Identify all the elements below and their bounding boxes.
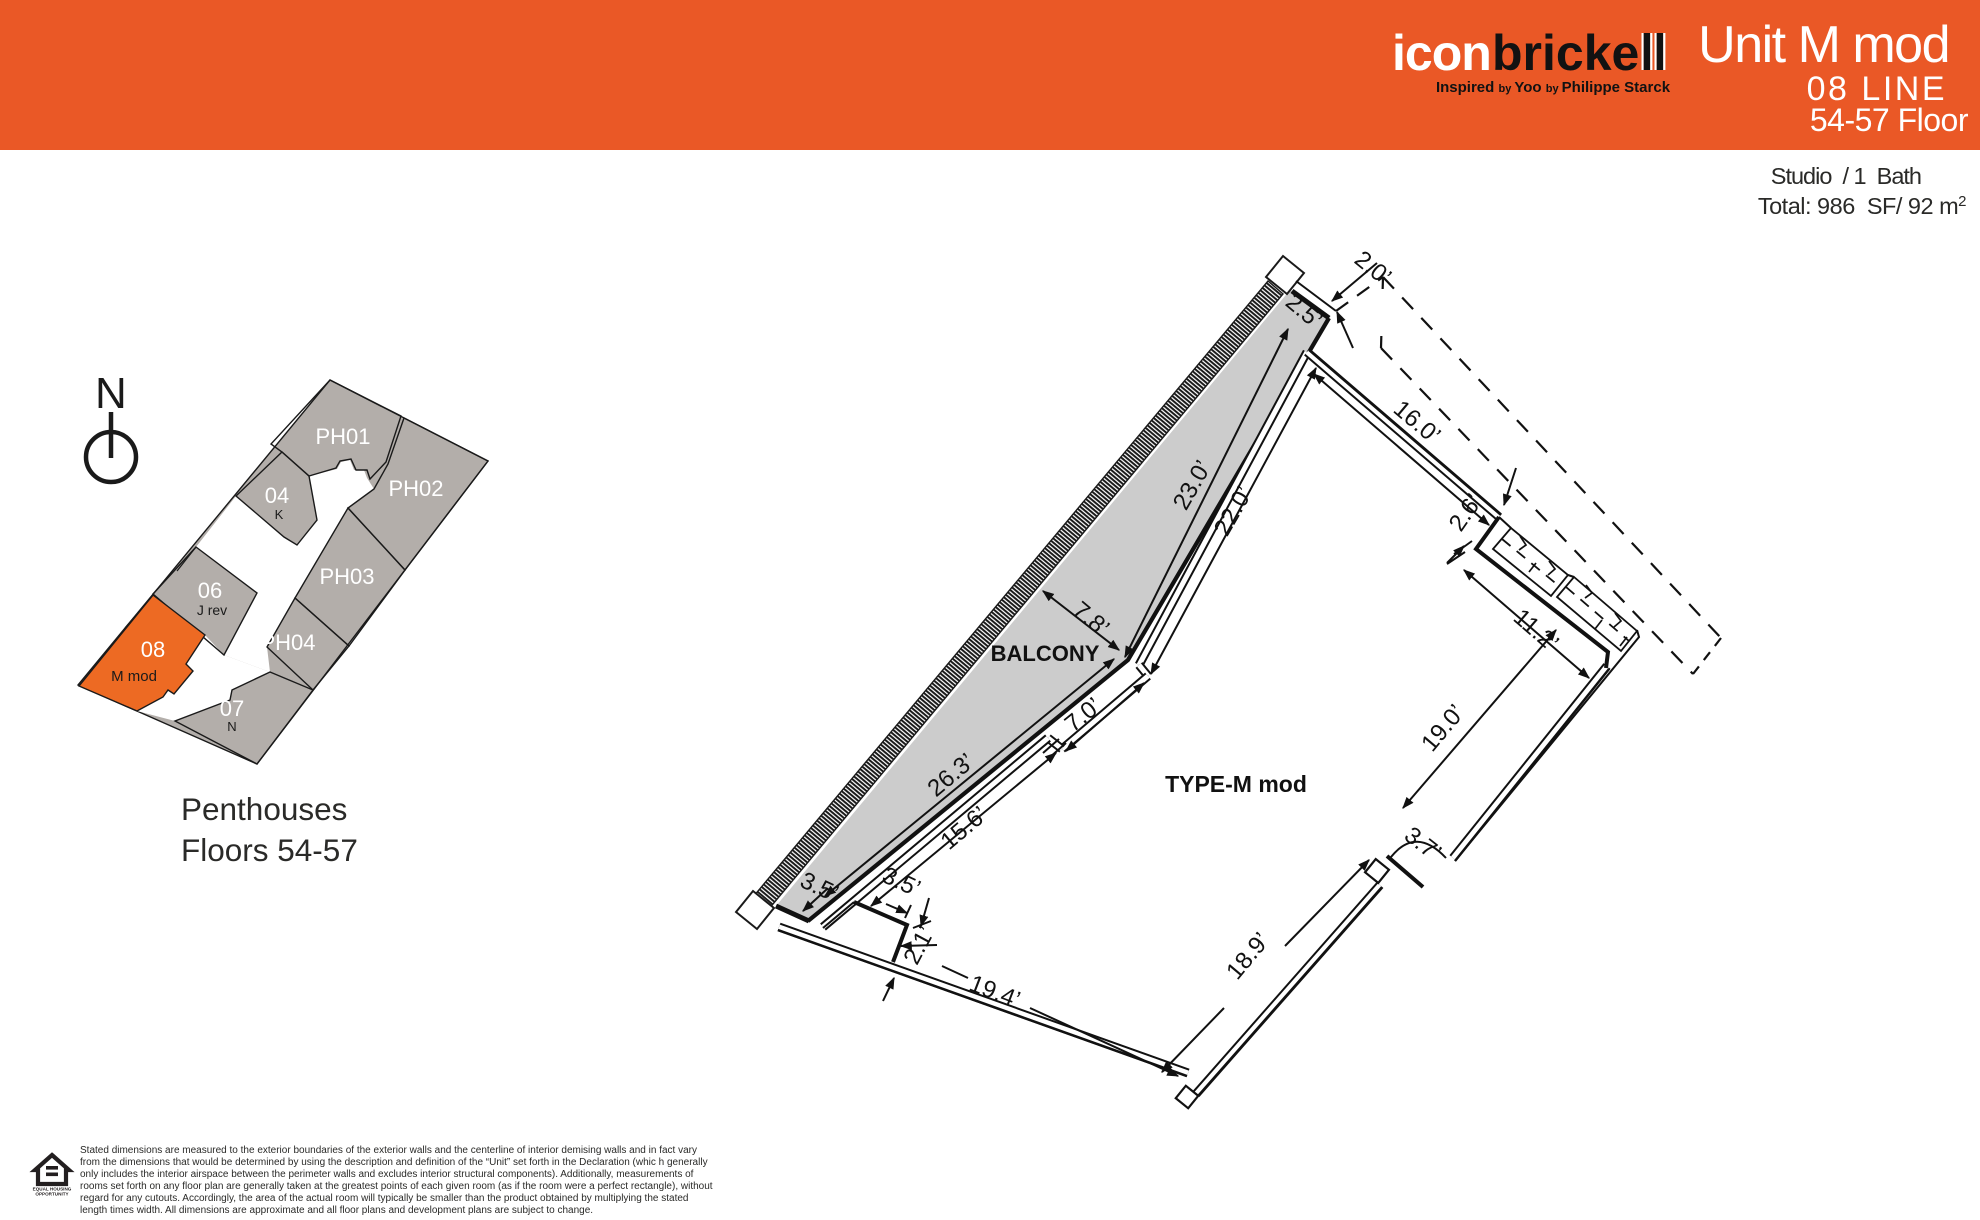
svg-text:M mod: M mod [111, 668, 157, 685]
svg-text:J rev: J rev [197, 602, 227, 618]
svg-text:PH01: PH01 [315, 424, 370, 449]
svg-text:06: 06 [198, 578, 222, 603]
svg-text:regard for any cutouts. Accord: regard for any cutouts. Accordingly, the… [80, 1193, 688, 1204]
svg-text:Total: 986 SF/ 92 m2: Total: 986 SF/ 92 m2 [1758, 193, 1966, 219]
svg-text:BALCONY: BALCONY [991, 641, 1100, 666]
svg-text:08: 08 [141, 637, 165, 662]
svg-text:Stated dimensions are measured: Stated dimensions are measured to the ex… [80, 1145, 697, 1156]
svg-text:bricke: bricke [1492, 25, 1639, 81]
svg-text:OPPORTUNITY: OPPORTUNITY [35, 1192, 68, 1197]
svg-text:length times width. All dimens: length times width. All dimensions are a… [80, 1205, 593, 1215]
svg-text:TYPE-M mod: TYPE-M mod [1165, 771, 1307, 797]
svg-text:Studio / 1 Bath: Studio / 1 Bath [1771, 163, 1921, 189]
svg-text:PH04: PH04 [260, 630, 315, 655]
svg-text:Penthouses: Penthouses [181, 791, 347, 827]
svg-text:rooms set forth on any floor p: rooms set forth on any floor plan are ge… [80, 1181, 713, 1192]
svg-text:54-57 Floor: 54-57 Floor [1810, 102, 1969, 138]
svg-text:from the dimensions that would: from the dimensions that would be determ… [80, 1157, 708, 1168]
svg-text:Floors 54-57: Floors 54-57 [181, 832, 358, 868]
svg-text:Unit M mod: Unit M mod [1698, 16, 1949, 74]
svg-text:04: 04 [265, 483, 289, 508]
svg-text:07: 07 [220, 696, 244, 721]
svg-text:PH02: PH02 [388, 476, 443, 501]
svg-text:icon: icon [1392, 25, 1491, 81]
svg-text:PH03: PH03 [319, 564, 374, 589]
svg-text:only includes the interior air: only includes the interior airspace betw… [80, 1169, 694, 1180]
svg-text:N: N [95, 369, 127, 418]
svg-text:K: K [275, 507, 284, 522]
svg-text:N: N [227, 719, 236, 734]
